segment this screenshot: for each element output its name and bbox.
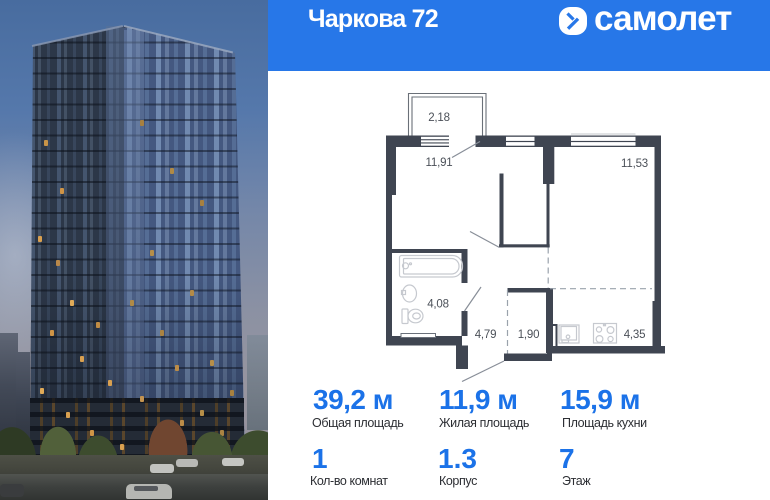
svg-text:2,18: 2,18 [428, 112, 450, 124]
svg-text:1,90: 1,90 [518, 329, 540, 341]
svg-text:4,79: 4,79 [475, 329, 497, 341]
svg-text:4,08: 4,08 [427, 299, 449, 311]
svg-text:11,91: 11,91 [426, 157, 453, 169]
svg-text:11,53: 11,53 [621, 158, 648, 170]
svg-text:4,35: 4,35 [624, 329, 646, 341]
